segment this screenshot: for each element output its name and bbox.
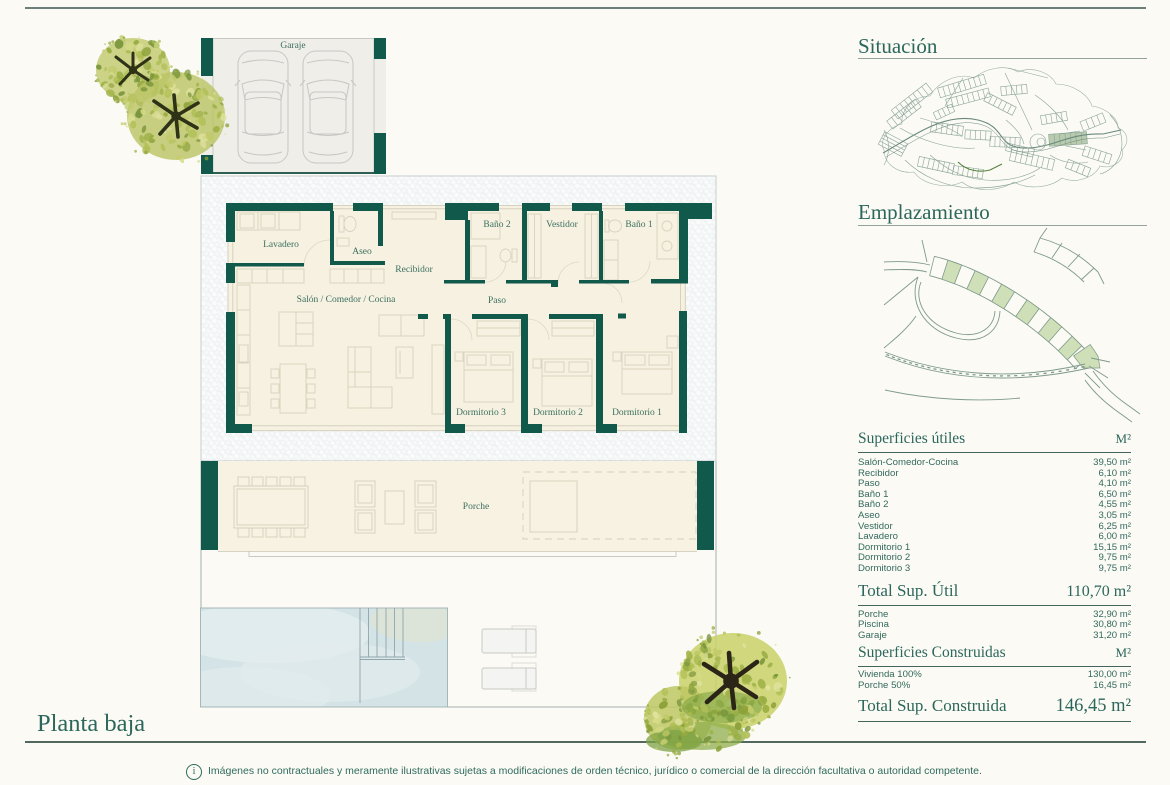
- svg-text:Dormitorio 3: Dormitorio 3: [456, 408, 506, 418]
- svg-text:Baño 1: Baño 1: [625, 220, 652, 230]
- svg-text:Salón / Comedor / Cocina: Salón / Comedor / Cocina: [297, 295, 396, 305]
- svg-text:Porche: Porche: [463, 502, 489, 512]
- svg-text:Paso: Paso: [488, 296, 506, 306]
- svg-text:Vestidor: Vestidor: [546, 220, 579, 230]
- svg-text:Aseo: Aseo: [352, 247, 372, 257]
- svg-text:Recibidor: Recibidor: [395, 265, 433, 275]
- svg-text:Lavadero: Lavadero: [263, 240, 299, 250]
- svg-text:Dormitorio 2: Dormitorio 2: [533, 408, 583, 418]
- svg-text:Dormitorio 1: Dormitorio 1: [612, 408, 662, 418]
- svg-text:Garaje: Garaje: [280, 41, 305, 51]
- svg-text:Baño 2: Baño 2: [483, 220, 510, 230]
